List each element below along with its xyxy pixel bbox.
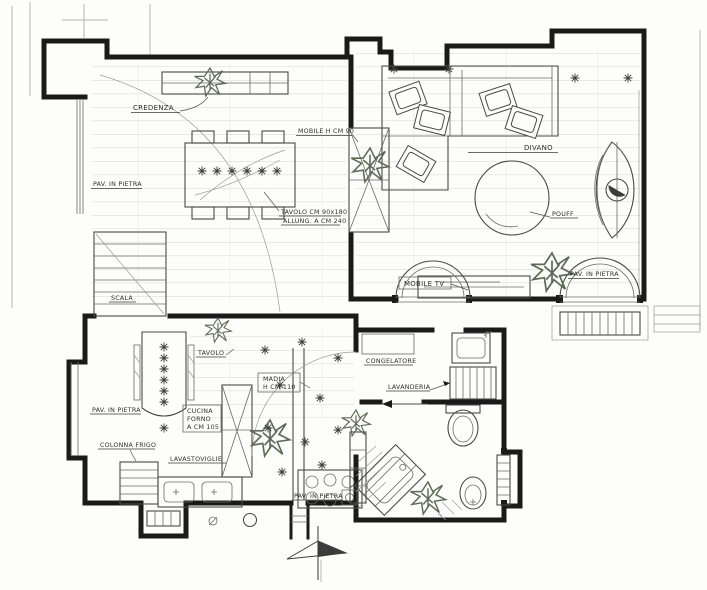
- label-mobile-tv: MOBILE TV: [404, 280, 444, 288]
- label-forno-3: A CM 105: [187, 424, 219, 431]
- label-pav-kitchen: PAV. IN PIETRA: [92, 407, 141, 414]
- bidet: [460, 477, 486, 509]
- window-dining-left: [77, 100, 83, 214]
- label-scala: SCALA: [111, 295, 133, 302]
- towel-radiator: [497, 455, 510, 505]
- label-forno-2: FORNO: [187, 416, 211, 423]
- laundry-tub: [452, 332, 492, 363]
- label-pav-dining: PAV. IN PIETRA: [93, 181, 142, 188]
- label-madia-2: H CM 110: [263, 384, 296, 391]
- toilet: [446, 405, 480, 446]
- fridge-column: [120, 462, 158, 504]
- label-tavolo-cucina: TAVOLO: [197, 350, 224, 357]
- label-pav-living: PAV. IN PIETRA: [570, 271, 619, 278]
- label-lavanderia: LAVANDERIA: [388, 384, 431, 391]
- plant-icon: [410, 482, 445, 514]
- label-forno-1: CUCINA: [187, 408, 213, 415]
- label-mobile-h90: MOBILE H CM 90: [298, 128, 354, 135]
- floor-plan-page: CREDENZA PAV. IN PIETRA MOBILE H CM 90 T…: [0, 0, 707, 590]
- label-tavolo-dim-2: ALLUNG. A CM 240: [283, 218, 346, 225]
- exterior-grate-right: [552, 306, 648, 340]
- label-pouff: POUFF: [552, 211, 574, 218]
- exterior-step-far-right: [654, 306, 700, 332]
- label-lavastoviglie: LAVASTOVIGLIE: [170, 456, 222, 463]
- label-colonna-frigo: COLONNA FRIGO: [100, 442, 156, 449]
- label-divano: DIVANO: [524, 144, 553, 152]
- window-kitchen-left: [71, 362, 78, 456]
- label-credenza: CREDENZA: [133, 104, 174, 112]
- north-arrow: [287, 526, 346, 582]
- bathroom: [355, 400, 510, 520]
- label-congelatore: CONGELATORE: [366, 358, 416, 365]
- bay-radiator: [147, 511, 180, 526]
- island-stool-symbols: [160, 343, 169, 433]
- label-madia-1: MADIA: [263, 376, 285, 383]
- label-tavolo-dim-1: TAVOLO CM 90x180: [280, 209, 347, 216]
- floor-plan-canvas: CREDENZA PAV. IN PIETRA MOBILE H CM 90 T…: [0, 0, 707, 590]
- door-arrow: [382, 400, 428, 408]
- drain-circles: [209, 514, 257, 527]
- label-pav-hall: PAV. IN PIETRA: [294, 493, 343, 500]
- drying-rack: [450, 367, 496, 399]
